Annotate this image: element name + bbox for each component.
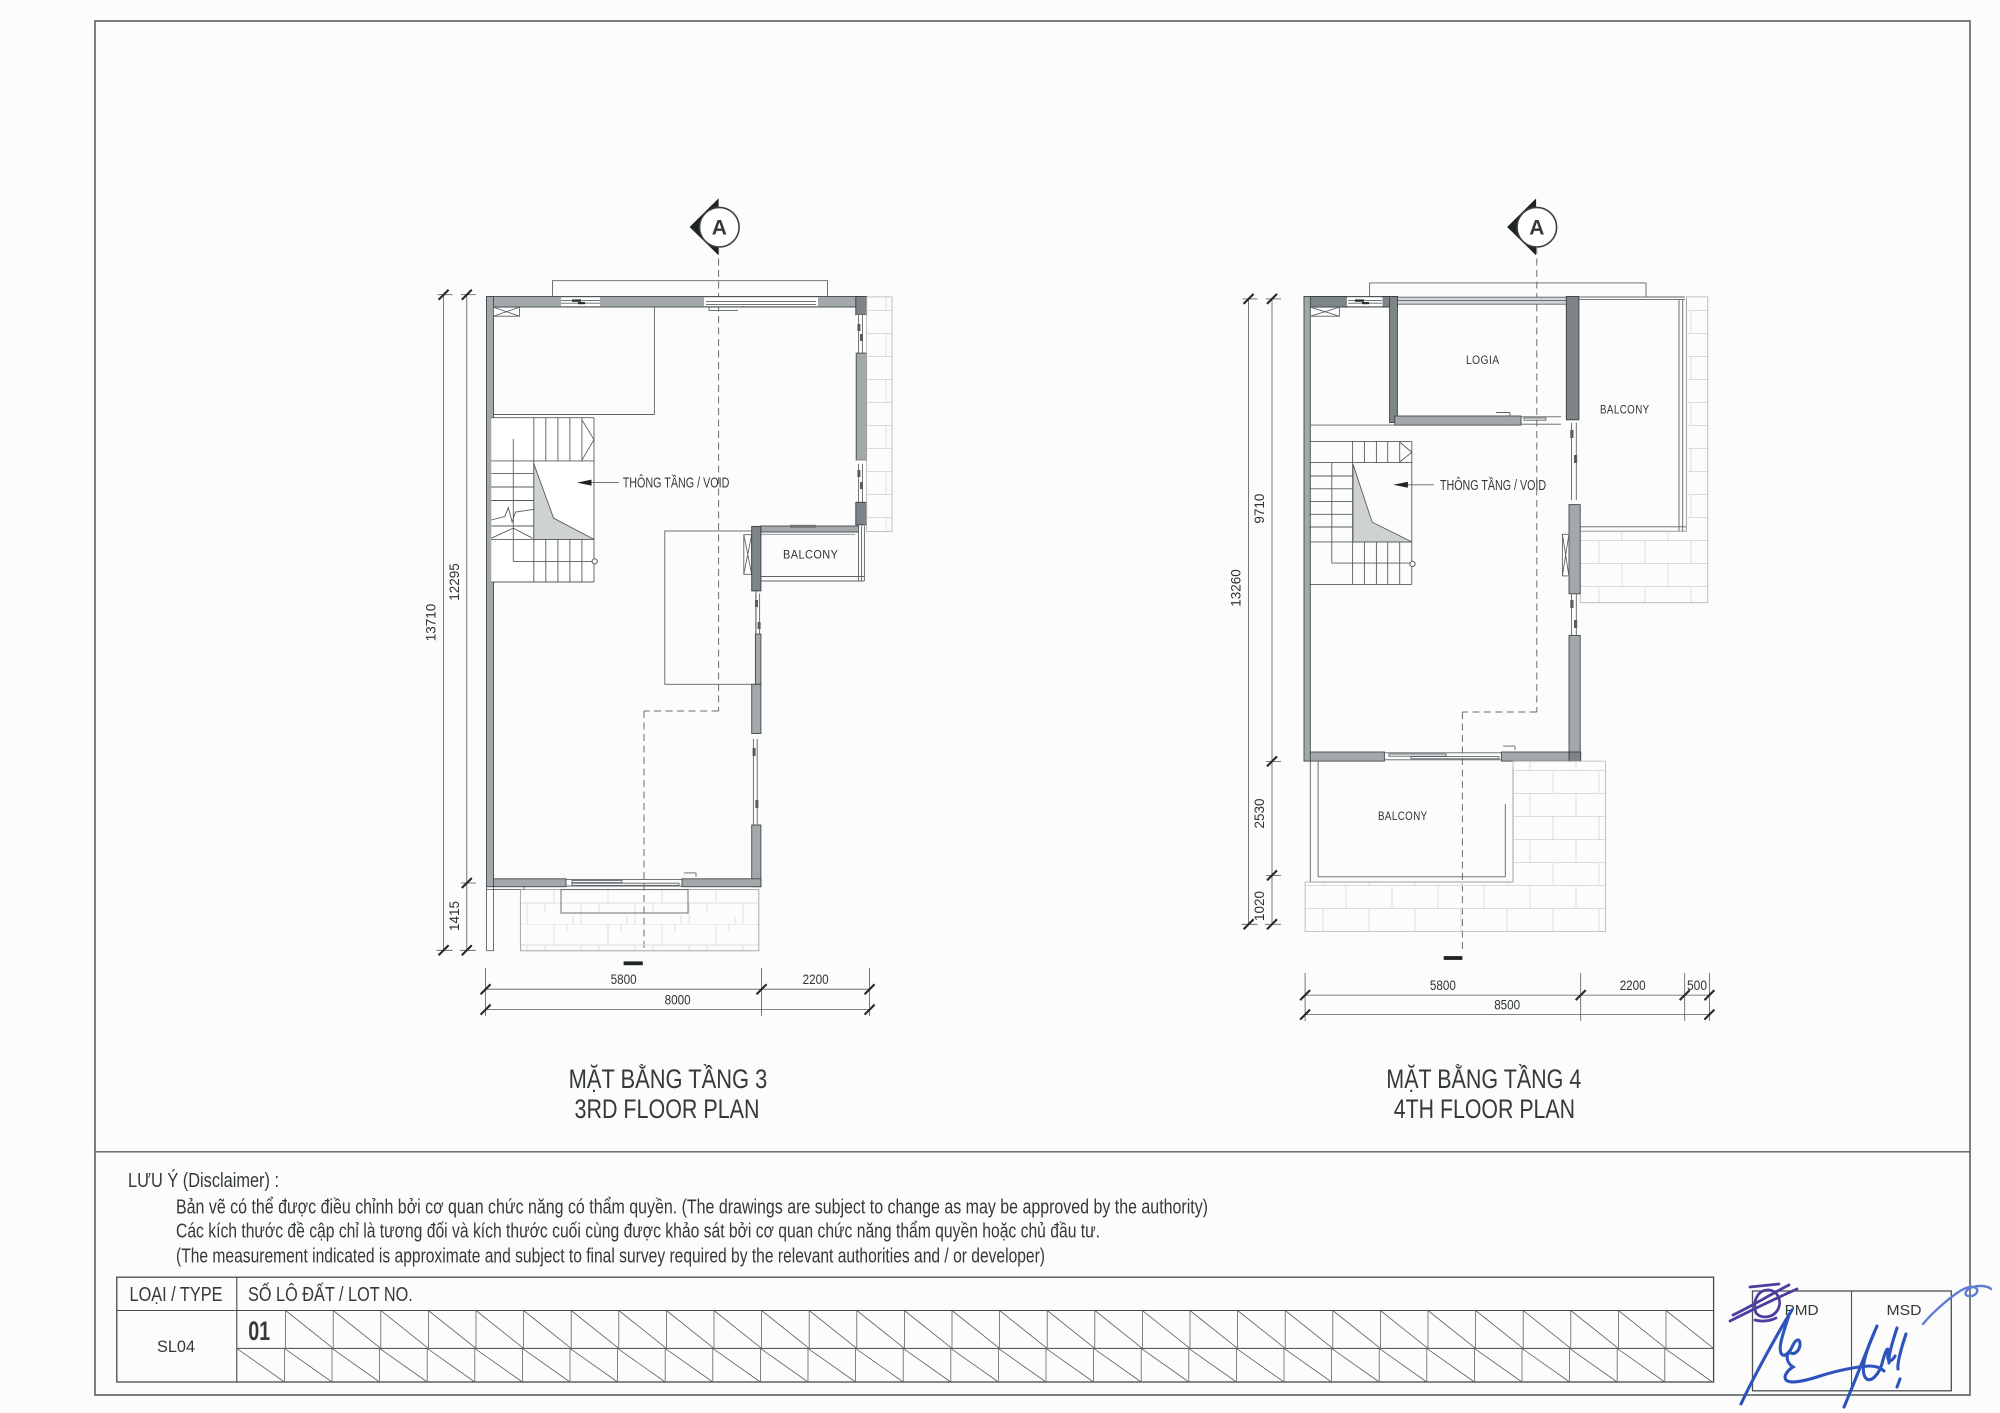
svg-text:MSD: MSD	[1887, 1302, 1922, 1319]
svg-text:4TH FLOOR PLAN: 4TH FLOOR PLAN	[1394, 1094, 1575, 1124]
svg-text:LƯU Ý (Disclaimer) :: LƯU Ý (Disclaimer) :	[128, 1169, 279, 1192]
svg-text:13260: 13260	[1229, 569, 1244, 607]
svg-text:MẶT BẰNG TẦNG 4: MẶT BẰNG TẦNG 4	[1386, 1063, 1581, 1094]
svg-text:8500: 8500	[1494, 997, 1520, 1012]
svg-text:(The measurement indicated is: (The measurement indicated is approximat…	[176, 1246, 1045, 1268]
svg-text:5800: 5800	[611, 972, 637, 987]
svg-text:3RD FLOOR PLAN: 3RD FLOOR PLAN	[575, 1094, 760, 1124]
svg-text:5800: 5800	[1430, 978, 1456, 993]
svg-text:8000: 8000	[665, 992, 691, 1007]
svg-text:01: 01	[248, 1316, 270, 1346]
svg-text:1020: 1020	[1252, 891, 1267, 921]
svg-text:9710: 9710	[1252, 494, 1267, 524]
svg-text:12295: 12295	[447, 563, 462, 601]
svg-text:BALCONY: BALCONY	[783, 547, 838, 561]
svg-text:BALCONY: BALCONY	[1600, 402, 1650, 416]
svg-text:13710: 13710	[424, 604, 439, 642]
svg-text:LOGIA: LOGIA	[1466, 353, 1500, 367]
svg-text:A: A	[712, 217, 727, 240]
svg-text:THÔNG TẦNG / VOID: THÔNG TẦNG / VOID	[623, 475, 730, 492]
svg-text:Bản vẽ có thể được điều chỉnh: Bản vẽ có thể được điều chỉnh bởi cơ qua…	[176, 1197, 1208, 1219]
svg-text:SỐ LÔ ĐẤT / LOT NO.: SỐ LÔ ĐẤT / LOT NO.	[248, 1282, 413, 1306]
svg-text:500: 500	[1687, 978, 1707, 993]
svg-text:THÔNG TẦNG / VOID: THÔNG TẦNG / VOID	[1440, 477, 1546, 494]
svg-text:LOẠI / TYPE: LOẠI / TYPE	[130, 1284, 223, 1306]
svg-text:2200: 2200	[1620, 978, 1646, 993]
svg-text:2200: 2200	[803, 972, 829, 987]
svg-text:A: A	[1529, 217, 1544, 240]
svg-text:BALCONY: BALCONY	[1378, 809, 1428, 823]
svg-text:2530: 2530	[1252, 798, 1267, 828]
svg-text:MẶT BẰNG TẦNG 3: MẶT BẰNG TẦNG 3	[569, 1063, 768, 1094]
svg-text:SL04: SL04	[157, 1338, 195, 1356]
svg-text:1415: 1415	[447, 901, 462, 931]
svg-text:Các kích thước đề cập chỉ là t: Các kích thước đề cập chỉ là tương đối v…	[176, 1221, 1100, 1243]
